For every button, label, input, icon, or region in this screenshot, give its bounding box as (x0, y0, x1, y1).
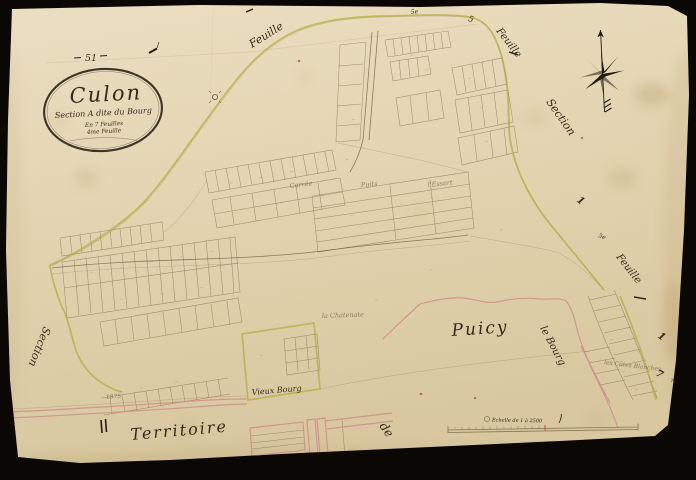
label-year: 1875 (106, 393, 122, 401)
label-puits: Puits (360, 180, 379, 189)
scanned-cadastral-map-page: 51 Culon Section A dite du Bourg En 7 Fe… (0, 0, 696, 480)
page-number: 51 (85, 53, 97, 64)
label-puicy: Puicy (450, 317, 509, 341)
cartouche-title: Culon (69, 80, 143, 108)
label-chatenate: la Chatenate (322, 311, 364, 320)
label-5e-top: 5e (410, 8, 419, 16)
scale-label: Echelle de 1 à 2500 (491, 416, 543, 424)
map-scan: 51 Culon Section A dite du Bourg En 7 Fe… (0, 0, 696, 480)
paper-texture-and-stains (0, 0, 696, 480)
